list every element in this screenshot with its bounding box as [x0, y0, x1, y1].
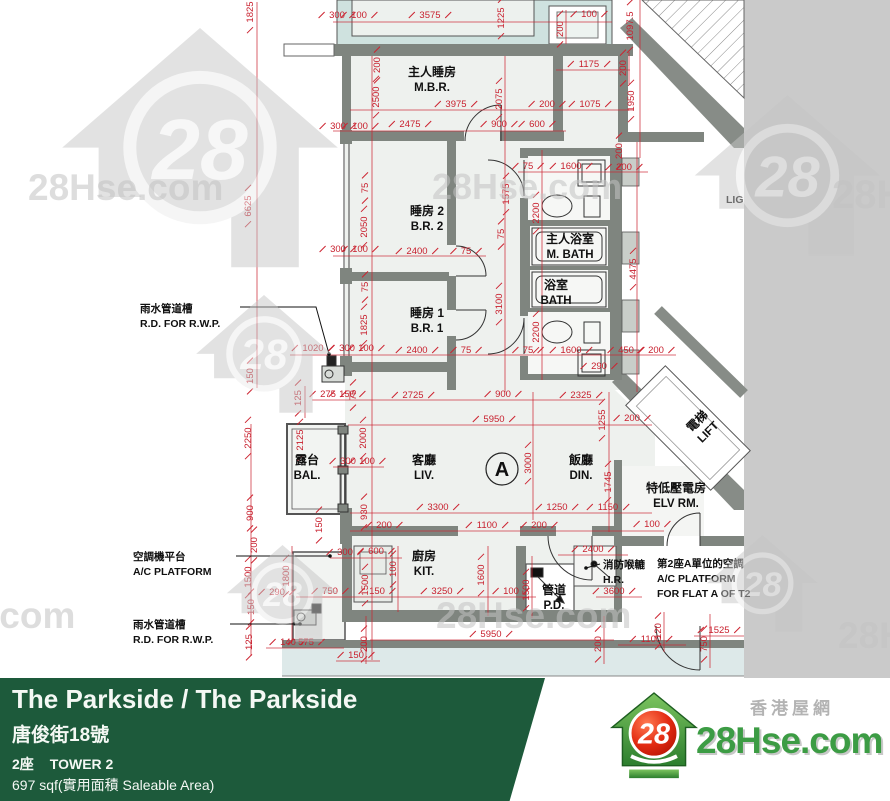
dimension-label: 300 [337, 547, 353, 558]
brand-house-icon: 28 [610, 690, 698, 784]
dimension-label: 3575 [419, 10, 440, 21]
dimension-label: 2000 [358, 427, 369, 448]
watermark-text: 28Hse.com [436, 595, 631, 636]
dimension-label: 100 [581, 9, 597, 20]
room-name-cn: 睡房 1 [410, 305, 444, 320]
dimension-label: 200 [372, 57, 383, 73]
room-name-cn: 飯廳 [568, 452, 593, 467]
dimension-label: 1225 [496, 7, 507, 28]
room-name-cn: 廚房 [412, 548, 436, 563]
dimension-label: 1255 [597, 409, 608, 430]
dimension-label: 200 [531, 520, 547, 531]
room-name-cn: 客廳 [411, 452, 436, 467]
annotation-text: H.R. [603, 574, 624, 586]
dimension-label: 75 [348, 390, 359, 401]
dimension-label: 2250 [243, 427, 254, 448]
dimension-label: 300 [339, 343, 355, 354]
dimension-label: 275 [320, 389, 336, 400]
dimension-label: 3000 [523, 452, 534, 473]
dimension-label: 2200 [531, 321, 542, 342]
dimension-label: 2125 [295, 429, 306, 450]
dimension-label: 140 [280, 637, 296, 648]
annotation-text: 雨水管道槽 [133, 618, 186, 631]
dimension-label: 2400 [406, 345, 427, 356]
room-name-en: KIT. [414, 566, 434, 578]
floorplan-drawing: 28 [0, 0, 890, 678]
dimension-label: 200 [249, 537, 260, 553]
room-name-cn: 主人浴室 [546, 231, 594, 246]
dimension-label: 150 [369, 586, 385, 597]
dimension-label: 3100 [494, 293, 505, 314]
room-name-cn: 特低壓電房 [646, 480, 706, 495]
tower-label: 2座TOWER 2 [12, 754, 113, 774]
room-name-en: M.B.R. [414, 82, 450, 94]
dimension-label: 1175 [579, 59, 599, 70]
dimension-label: 5950 [483, 414, 504, 425]
dimension-label: 200 [376, 520, 392, 531]
dimension-label: 200 [539, 99, 555, 110]
dimension-label: 75 [360, 282, 371, 293]
dimension-label: 450 [618, 345, 634, 356]
saleable-area: 697 sqf(實用面積 Saleable Area) [12, 775, 214, 795]
dimension-label: 200 [555, 21, 566, 37]
dimension-label: 75 [523, 345, 534, 356]
dimension-label: 1075 [579, 99, 600, 110]
room-name-en: ELV RM. [653, 498, 699, 510]
dimension-label: 1950 [626, 90, 637, 111]
dimension-label: 1250 [546, 502, 567, 513]
dimension-label: 200 [614, 143, 625, 159]
dimension-label: 3975 [445, 99, 466, 110]
room-name-en: LIV. [414, 470, 434, 482]
dimension-label: 2500 [371, 86, 382, 107]
dimension-label: 200 [648, 345, 664, 356]
dimension-label: 75 [461, 246, 472, 257]
dimension-label: 2075 [494, 88, 505, 109]
info-banner: The Parkside / The Parkside 唐俊街18號 2座TOW… [0, 678, 890, 801]
brand-wordmark: 28Hse.com [696, 720, 882, 762]
room-name-en: M. BATH [546, 249, 593, 261]
leader-arrow [584, 566, 588, 570]
watermark-text: 28Hse.com [0, 595, 75, 636]
watermark-text: 28Hse.com [432, 166, 622, 207]
flat-label-text: A [495, 459, 509, 481]
dimension-label: 930 [359, 504, 370, 520]
dimension-label: 200 [618, 60, 629, 76]
dimension-label: 4475 [628, 258, 639, 279]
dimension-label: 900 [495, 389, 511, 400]
dimension-label: 75 [461, 345, 472, 356]
watermark-text: 28Hse.com [832, 173, 890, 217]
annotation-text: 空調機平台 [133, 550, 186, 563]
annotation-text: R.D. FOR R.W.P. [140, 318, 220, 330]
annotation-text: R.D. FOR R.W.P. [133, 634, 213, 646]
dimension-label: 1097.5 [625, 11, 636, 40]
dimension-label: 75 [496, 229, 507, 240]
room-name-cn: 露台 [295, 452, 319, 467]
estate-address: 唐俊街18號 [12, 720, 109, 747]
dimension-label: 200 [624, 413, 640, 424]
room-name-cn: 浴室 [544, 277, 568, 292]
dimension-label: 100 [388, 561, 399, 577]
dimension-label: 100 [644, 519, 660, 530]
dimension-label: 1525 [708, 625, 729, 636]
dimension-label: 1150 [598, 502, 618, 513]
dimension-label: 120 [653, 623, 664, 639]
dimension-label: 1745 [603, 471, 614, 492]
room-name-cn: 主人睡房 [408, 64, 456, 79]
site-logo: 28 香港屋網 28Hse.com [598, 688, 890, 791]
dimension-label: 200 [593, 636, 604, 652]
annotation-text: A/C PLATFORM [133, 566, 212, 578]
dimension-label: 900 [491, 119, 507, 130]
info-banner-green: The Parkside / The Parkside 唐俊街18號 2座TOW… [0, 678, 545, 801]
room-name-en: B.R. 2 [411, 221, 444, 233]
annotation-text: 消防喉轆 [603, 558, 645, 571]
dimension-label: 300 [340, 456, 356, 467]
dimension-label: 600 [368, 546, 384, 557]
dimension-label: 2400 [406, 246, 427, 257]
annotation-text: 雨水管道槽 [140, 302, 193, 315]
dimension-label: 1100 [477, 520, 497, 531]
dimension-label: 1600 [560, 345, 581, 356]
watermark-text: 28Hse.com [838, 615, 890, 656]
dimension-label: 2725 [402, 390, 423, 401]
watermark-text: 28Hse.com [28, 167, 223, 208]
room-name-en: BAL. [294, 470, 321, 482]
dimension-label: 2400 [582, 544, 603, 555]
dimension-label: 100 [352, 121, 368, 132]
dimension-label: 1825 [359, 314, 370, 335]
dimension-label: 2325 [570, 390, 591, 401]
flat-label: A [486, 453, 518, 485]
dimension-label: 75 [360, 183, 371, 194]
tower-cn: 2座 [12, 756, 34, 772]
room-name-en: B.R. 1 [411, 323, 444, 335]
dimension-label: 600 [529, 119, 545, 130]
dimension-label: 150 [314, 517, 325, 533]
dimension-label: 2050 [359, 216, 370, 237]
tower-en: TOWER 2 [50, 756, 114, 772]
floorplan-page: 28 [0, 0, 890, 801]
dimension-label: 100 [358, 343, 374, 354]
leader-arrow [328, 554, 332, 558]
dimension-label: 125 [244, 634, 255, 650]
brand-28-label: 28 [637, 719, 670, 751]
estate-title: The Parkside / The Parkside [12, 684, 357, 715]
dimension-label: 1600 [476, 564, 487, 585]
dimension-label: 900 [245, 505, 256, 521]
dimension-label: 1825 [245, 1, 256, 22]
dimension-label: 290 [591, 361, 607, 372]
brand-tagline: 香港屋網 [750, 694, 834, 719]
dimension-label: 100 [351, 10, 367, 21]
room-name-en: BATH [540, 295, 571, 307]
dimension-label: 100 [352, 244, 368, 255]
dimension-label: 3300 [427, 502, 448, 513]
dimension-label: 100 [359, 456, 375, 467]
dimension-label: 750 [699, 636, 710, 652]
dimension-label: 150 [348, 650, 364, 661]
dimension-label: 2475 [399, 119, 420, 130]
room-name-en: DIN. [570, 470, 593, 482]
